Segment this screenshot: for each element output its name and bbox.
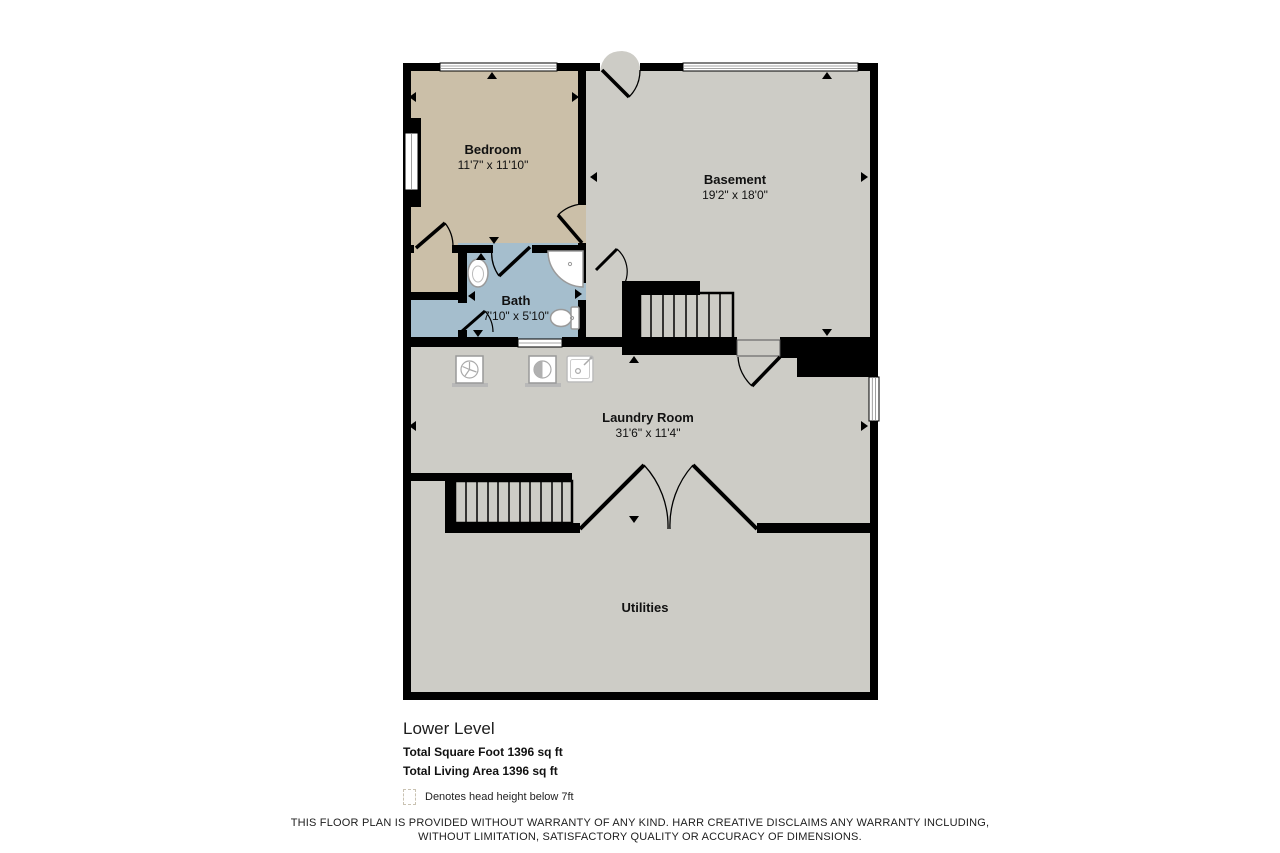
bath-label: Bath [502,293,531,308]
stair-landing [737,340,780,356]
plan-summary: Lower Level Total Square Foot 1396 sq ft… [403,719,574,805]
laundry-label: Laundry Room [602,410,694,425]
wall-outer-bottom [403,692,878,700]
laundry-right-window [869,377,879,421]
basement-top-window [683,63,858,71]
floor-plan-page: Bedroom 11'7" x 11'10" Basement 19'2" x … [0,0,1280,853]
head-height-legend-icon [403,789,416,805]
laundry-dims: 31'6" x 11'4" [616,426,681,440]
level-title: Lower Level [403,719,574,739]
toilet-fixture [551,307,580,329]
bedroom-dims: 11'7" x 11'10" [458,158,529,172]
legend-note: Denotes head height below 7ft [425,791,574,803]
dryer-icon [456,356,483,383]
legend-row: Denotes head height below 7ft [403,789,574,805]
disclaimer-line-2: WITHOUT LIMITATION, SATISFACTORY QUALITY… [0,830,1280,844]
disclaimer-line-1: THIS FLOOR PLAN IS PROVIDED WITHOUT WARR… [0,816,1280,830]
floor-plan-drawing: Bedroom 11'7" x 11'10" Basement 19'2" x … [0,0,1280,853]
disclaimer: THIS FLOOR PLAN IS PROVIDED WITHOUT WARR… [0,816,1280,844]
total-living-area: Total Living Area 1396 sq ft [403,764,574,778]
bath-dims: 7'10" x 5'10" [483,309,549,323]
basement-dims: 19'2" x 18'0" [702,188,768,202]
basement-label: Basement [704,172,767,187]
bedroom-top-window [440,63,557,71]
utilities-label: Utilities [622,600,669,615]
washer-icon [529,356,556,383]
sink-fixture [468,259,488,287]
bath-bottom-window [518,339,562,347]
bedroom-label: Bedroom [464,142,521,157]
total-square-foot: Total Square Foot 1396 sq ft [403,745,574,759]
laundry-sink-icon [567,356,593,382]
bedroom-left-window [405,133,418,190]
